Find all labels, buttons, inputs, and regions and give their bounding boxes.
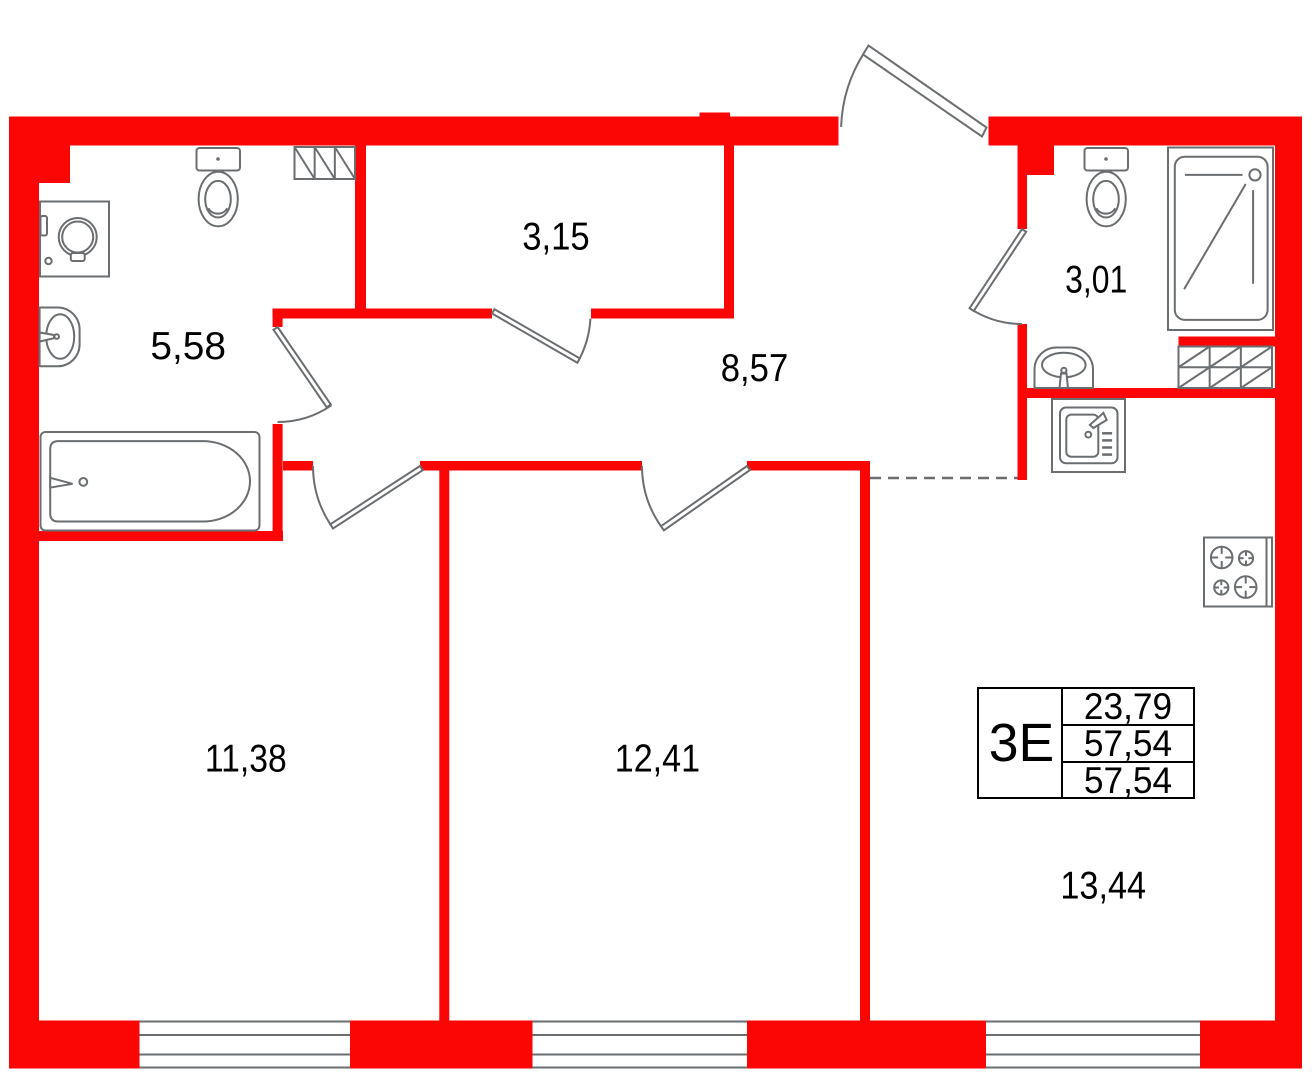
svg-text:12,41: 12,41 — [615, 737, 700, 780]
svg-text:23,79: 23,79 — [1084, 685, 1172, 727]
svg-text:13,44: 13,44 — [1060, 864, 1146, 907]
svg-text:57,54: 57,54 — [1084, 759, 1172, 801]
svg-text:11,38: 11,38 — [205, 736, 287, 780]
svg-text:3Е: 3Е — [989, 714, 1054, 773]
svg-text:57,54: 57,54 — [1084, 722, 1172, 764]
svg-text:8,57: 8,57 — [721, 346, 788, 389]
svg-text:3,15: 3,15 — [522, 215, 589, 258]
svg-text:5,58: 5,58 — [150, 325, 226, 368]
svg-text:3,01: 3,01 — [1065, 259, 1127, 301]
